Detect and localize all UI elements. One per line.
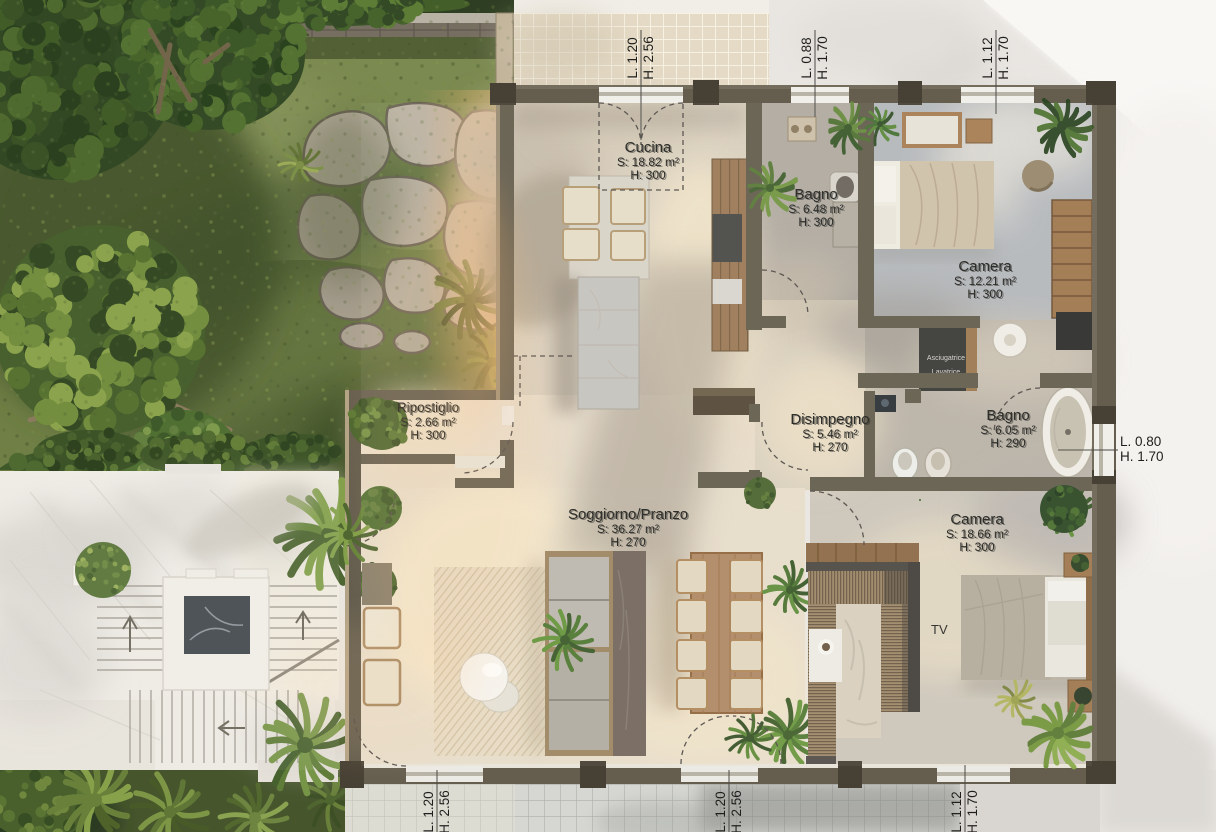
svg-text:L. 1.20: L. 1.20 (713, 791, 728, 832)
svg-text:L. 1.12: L. 1.12 (949, 791, 964, 832)
svg-text:H. 1.70: H. 1.70 (815, 36, 830, 80)
svg-text:H. 1.70: H. 1.70 (965, 790, 980, 832)
svg-text:L. 1.20: L. 1.20 (625, 37, 640, 78)
svg-text:H. 1.70: H. 1.70 (996, 36, 1011, 80)
svg-text:L. 0.88: L. 0.88 (799, 37, 814, 78)
svg-text:H. 1.70: H. 1.70 (1120, 449, 1164, 464)
svg-text:L. 1.20: L. 1.20 (421, 791, 436, 832)
svg-text:L. 0.80: L. 0.80 (1120, 434, 1161, 449)
svg-text:H. 2.56: H. 2.56 (729, 790, 744, 832)
svg-text:H. 2.56: H. 2.56 (437, 790, 452, 832)
svg-text:L. 1.12: L. 1.12 (980, 37, 995, 78)
svg-text:H. 2.56: H. 2.56 (641, 36, 656, 80)
